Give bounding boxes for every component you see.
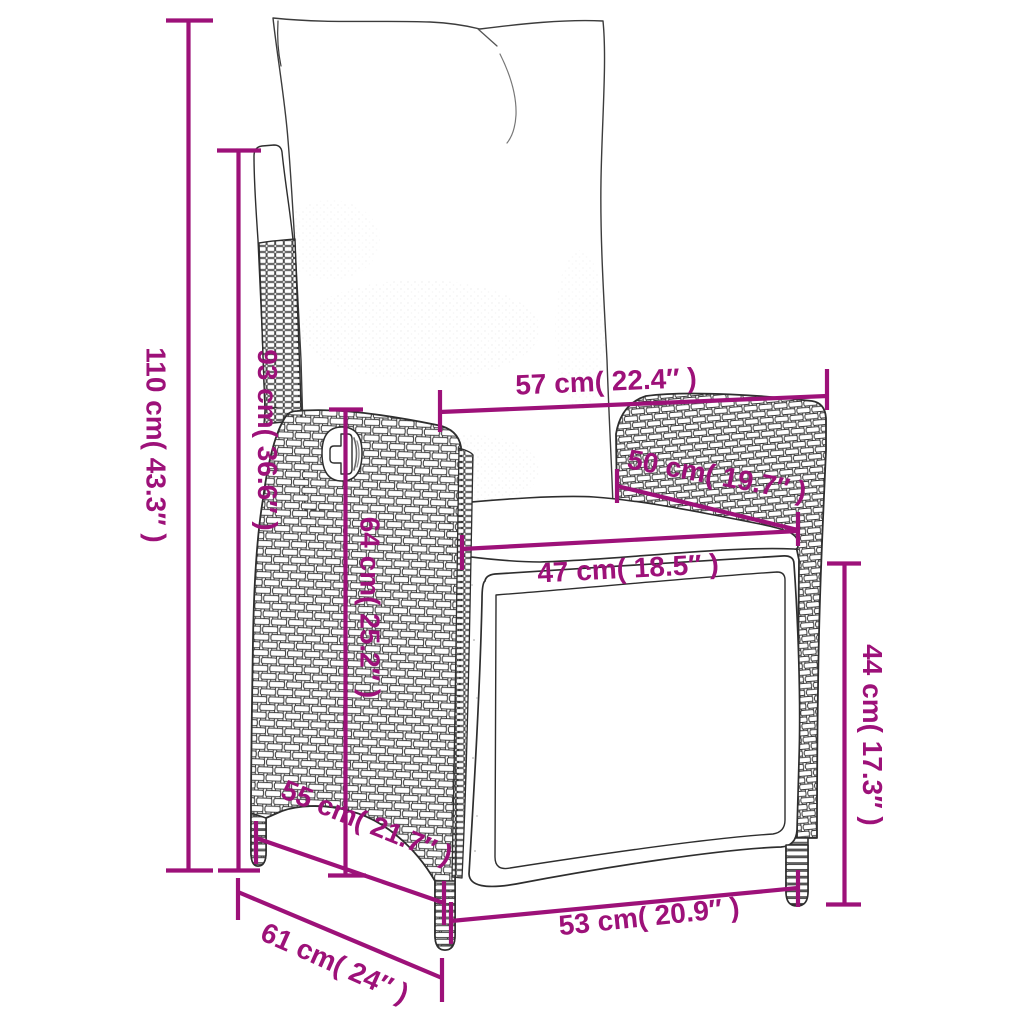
svg-text:93 cm( 36.6″ ): 93 cm( 36.6″ ) [252, 349, 283, 531]
svg-text:110 cm( 43.3″ ): 110 cm( 43.3″ ) [141, 347, 172, 543]
svg-text:64 cm( 25.2″ ): 64 cm( 25.2″ ) [355, 517, 386, 699]
svg-text:44 cm( 17.3″ ): 44 cm( 17.3″ ) [857, 644, 888, 826]
